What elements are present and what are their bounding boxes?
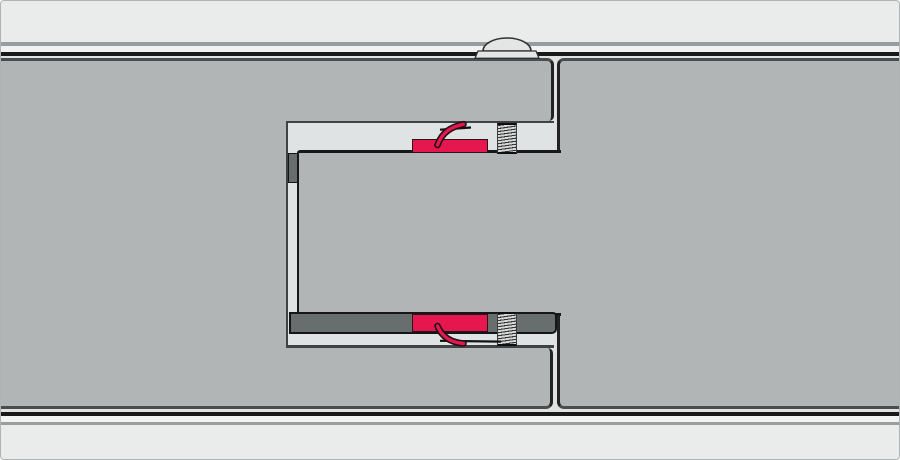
cover-cap-dome-icon [483, 38, 531, 51]
cam-hooks-overlay [1, 1, 900, 460]
panel-joint-diagram [0, 0, 900, 460]
cover-cap-base [475, 51, 539, 58]
cover-cap [471, 36, 543, 59]
